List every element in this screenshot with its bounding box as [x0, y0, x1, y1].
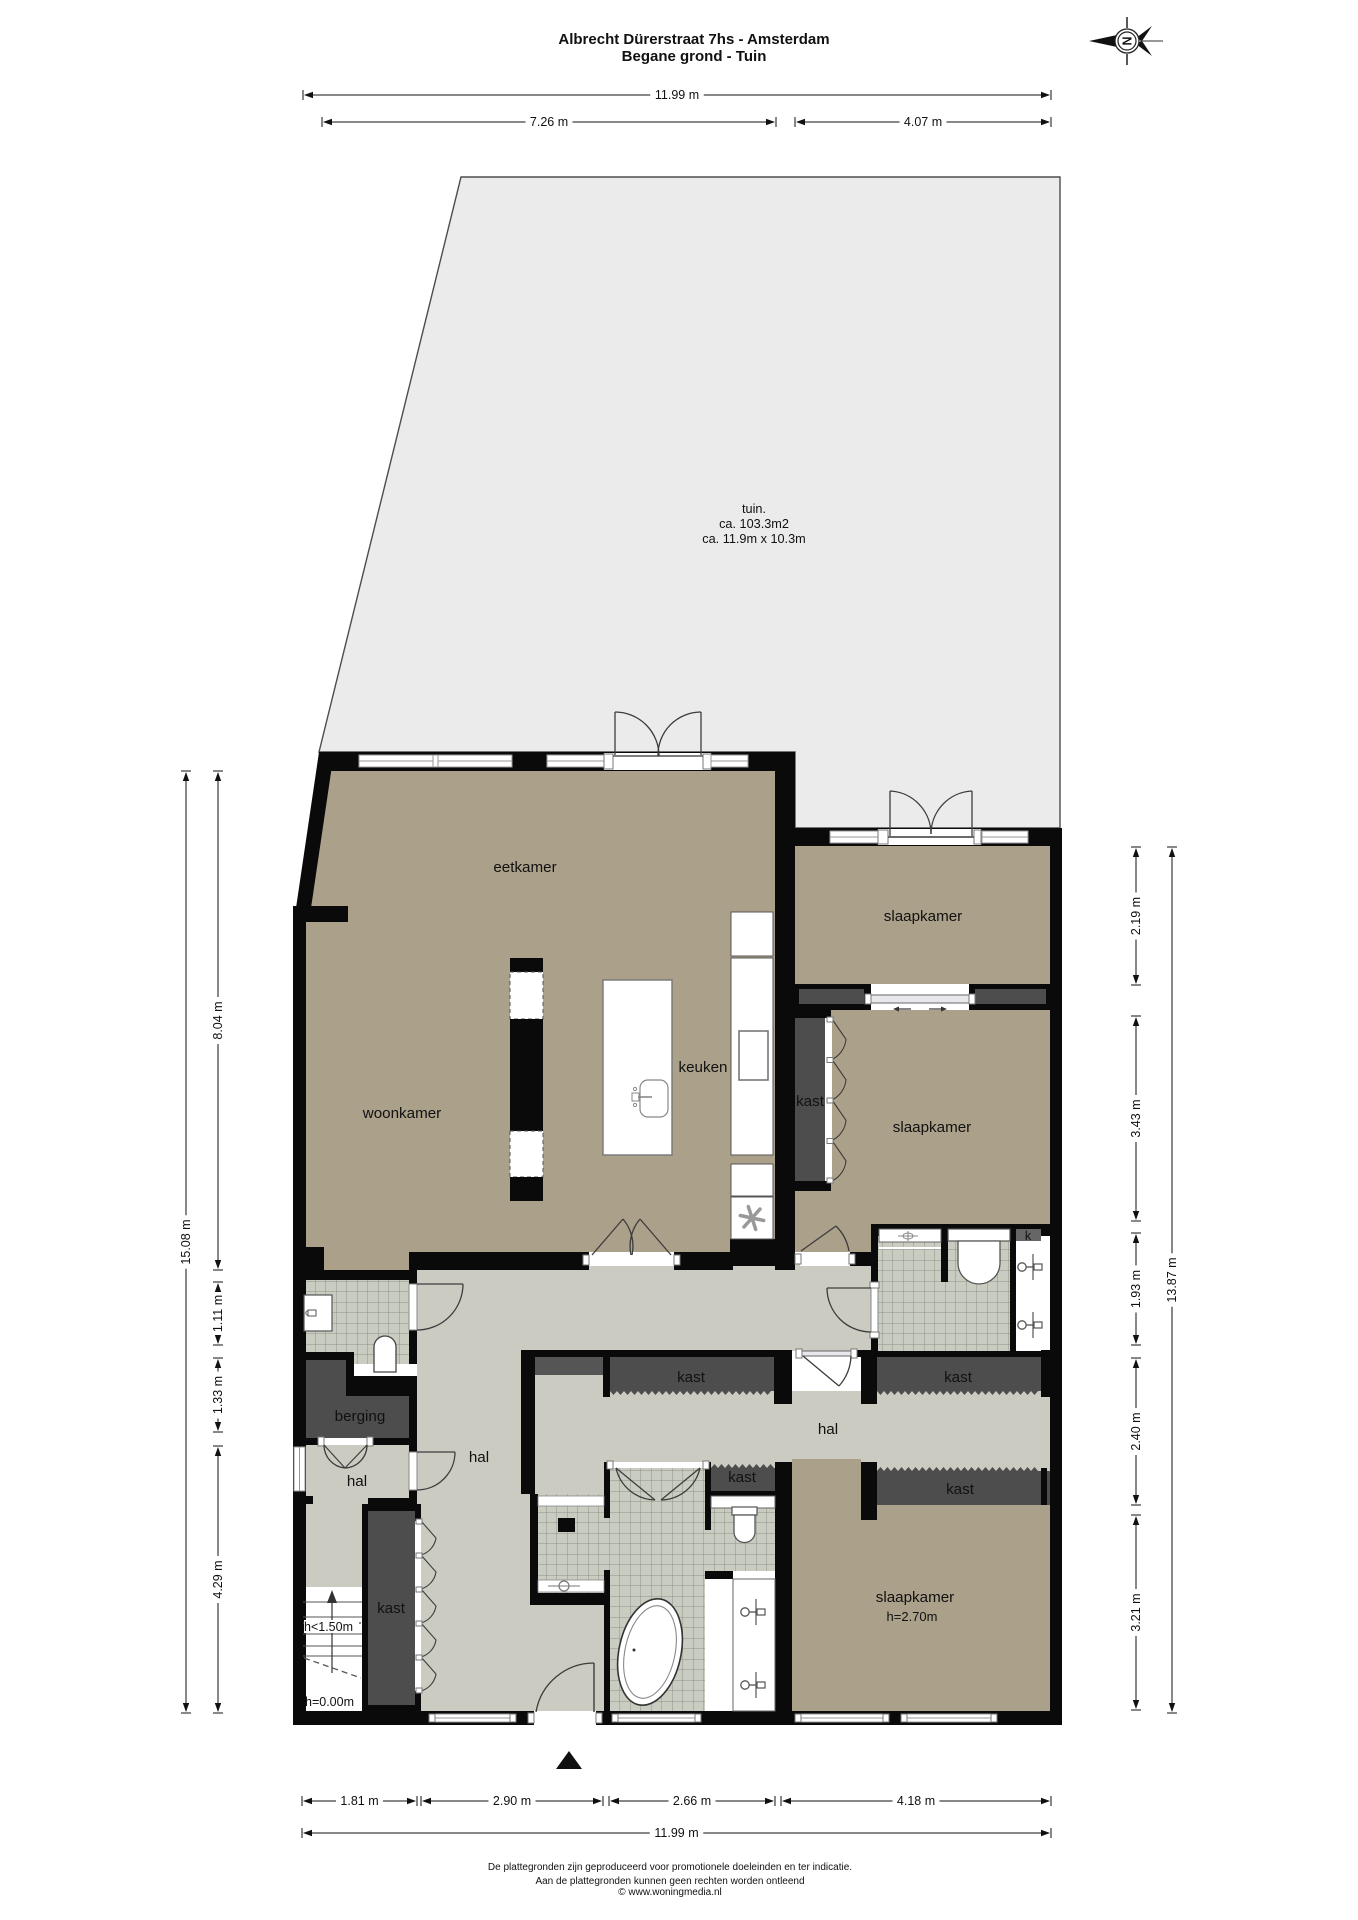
svg-text:hal: hal [347, 1473, 367, 1490]
svg-text:slaapkamer: slaapkamer [884, 908, 963, 925]
svg-text:kast: kast [677, 1369, 706, 1386]
svg-text:15.08 m: 15.08 m [179, 1219, 193, 1264]
svg-text:8.04 m: 8.04 m [211, 1001, 225, 1039]
svg-text:2.66 m: 2.66 m [673, 1794, 711, 1808]
svg-text:Begane grond - Tuin: Begane grond - Tuin [622, 48, 767, 65]
svg-text:1.93 m: 1.93 m [1129, 1270, 1143, 1308]
svg-text:3.43 m: 3.43 m [1129, 1099, 1143, 1137]
svg-text:berging: berging [335, 1408, 386, 1425]
svg-text:kast: kast [944, 1369, 973, 1386]
svg-text:h<1.50m: h<1.50m [304, 1620, 353, 1634]
svg-text:ca. 11.9m x 10.3m: ca. 11.9m x 10.3m [702, 532, 805, 546]
svg-text:N: N [1121, 36, 1135, 45]
svg-text:h=0.00m: h=0.00m [305, 1695, 354, 1709]
svg-text:ca. 103.3m2: ca. 103.3m2 [719, 517, 789, 531]
svg-text:4.18 m: 4.18 m [897, 1794, 935, 1808]
svg-text:h=2.70m: h=2.70m [887, 1609, 938, 1624]
svg-text:tuin.: tuin. [742, 502, 766, 516]
svg-text:De plattegronden zijn geproduc: De plattegronden zijn geproduceerd voor … [488, 1862, 852, 1873]
svg-text:kast: kast [796, 1093, 825, 1110]
svg-text:Albrecht Dürerstraat 7hs - Ams: Albrecht Dürerstraat 7hs - Amsterdam [558, 31, 829, 48]
svg-text:hal: hal [818, 1421, 838, 1438]
svg-text:2.40 m: 2.40 m [1129, 1412, 1143, 1450]
svg-text:11.99 m: 11.99 m [654, 1826, 698, 1840]
svg-text:kast: kast [377, 1600, 406, 1617]
svg-text:4.29 m: 4.29 m [211, 1560, 225, 1598]
svg-text:1.81 m: 1.81 m [340, 1794, 378, 1808]
svg-text:2.19 m: 2.19 m [1129, 897, 1143, 935]
svg-text:keuken: keuken [679, 1059, 728, 1076]
svg-text:kast: kast [946, 1481, 975, 1498]
svg-text:7.26 m: 7.26 m [530, 115, 568, 129]
svg-text:slaapkamer: slaapkamer [893, 1119, 972, 1136]
svg-text:1.11 m: 1.11 m [211, 1295, 225, 1332]
svg-text:11.99 m: 11.99 m [655, 88, 699, 102]
svg-text:4.07 m: 4.07 m [904, 115, 942, 129]
svg-text:eetkamer: eetkamer [493, 859, 556, 876]
svg-text:slaapkamer: slaapkamer [876, 1589, 955, 1606]
svg-text:k: k [1025, 1229, 1032, 1243]
svg-text:2.90 m: 2.90 m [493, 1794, 531, 1808]
svg-text:kast: kast [728, 1469, 757, 1486]
svg-text:1.33 m: 1.33 m [211, 1376, 225, 1414]
svg-text:3.21 m: 3.21 m [1129, 1593, 1143, 1631]
svg-text:Aan de plattegronden kunnen ge: Aan de plattegronden kunnen geen rechten… [535, 1876, 804, 1887]
svg-text:© www.woningmedia.nl: © www.woningmedia.nl [618, 1887, 722, 1898]
svg-text:13.87 m: 13.87 m [1165, 1257, 1179, 1302]
svg-text:hal: hal [469, 1449, 489, 1466]
svg-text:woonkamer: woonkamer [362, 1105, 442, 1122]
